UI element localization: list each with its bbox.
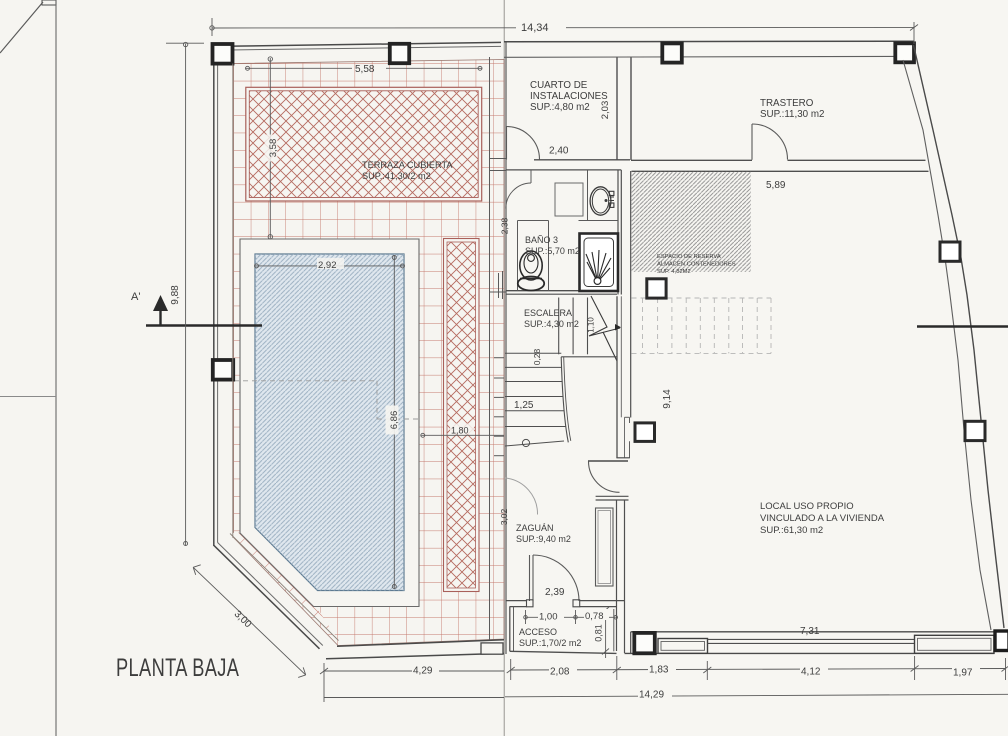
- svg-text:3,02: 3,02: [499, 508, 509, 525]
- svg-text:TRASTERO: TRASTERO: [760, 98, 814, 109]
- svg-text:7,31: 7,31: [800, 626, 820, 637]
- svg-text:SUP.:5,70 m2: SUP.:5,70 m2: [525, 246, 580, 256]
- svg-text:2,03: 2,03: [600, 101, 611, 120]
- svg-text:5,58: 5,58: [355, 64, 375, 75]
- svg-text:LOCAL USO PROPIO: LOCAL USO PROPIO: [760, 501, 854, 512]
- svg-text:ESCALERA: ESCALERA: [524, 308, 572, 318]
- svg-text:3,58: 3,58: [268, 139, 279, 158]
- svg-text:ACCESO: ACCESO: [519, 627, 557, 637]
- svg-text:2,39: 2,39: [545, 587, 565, 598]
- svg-text:2,08: 2,08: [550, 667, 570, 678]
- svg-text:1,00: 1,00: [539, 612, 558, 623]
- svg-text:0,78: 0,78: [585, 611, 604, 622]
- svg-text:BAÑO 3: BAÑO 3: [525, 235, 558, 245]
- svg-text:SUP.:4,80 m2: SUP.:4,80 m2: [530, 102, 590, 113]
- svg-text:ALMACEN CONTENEDORES: ALMACEN CONTENEDORES: [657, 262, 736, 268]
- svg-text:2,40: 2,40: [549, 146, 569, 157]
- svg-text:5,89: 5,89: [766, 180, 786, 191]
- svg-text:INSTALACIONES: INSTALACIONES: [530, 91, 608, 102]
- svg-text:4,29: 4,29: [413, 666, 433, 677]
- svg-text:1,10: 1,10: [587, 317, 596, 333]
- svg-text:CUARTO DE: CUARTO DE: [530, 80, 588, 91]
- svg-text:SUP. 4,82M2: SUP. 4,82M2: [657, 269, 691, 275]
- svg-text:14,29: 14,29: [639, 690, 664, 701]
- svg-text:0,81: 0,81: [594, 624, 604, 642]
- svg-text:SUP.:9,40 m2: SUP.:9,40 m2: [516, 534, 571, 544]
- svg-text:SUP.:11,30 m2: SUP.:11,30 m2: [760, 109, 824, 120]
- svg-text:4,12: 4,12: [801, 667, 821, 678]
- svg-text:SUP.:61,30 m2: SUP.:61,30 m2: [760, 525, 823, 536]
- svg-text:ESPACIO DE RESERVA: ESPACIO DE RESERVA: [657, 254, 721, 260]
- svg-text:14,34: 14,34: [521, 22, 549, 34]
- svg-text:VINCULADO A LA VIVIENDA: VINCULADO A LA VIVIENDA: [760, 513, 885, 524]
- svg-text:0,28: 0,28: [532, 348, 542, 365]
- svg-text:1,83: 1,83: [649, 665, 669, 676]
- svg-text:2,38: 2,38: [500, 217, 510, 234]
- svg-text:9,14: 9,14: [662, 389, 673, 409]
- svg-text:1,25: 1,25: [514, 400, 534, 411]
- svg-text:1,97: 1,97: [953, 668, 973, 679]
- svg-text:SUP.:41,30/2 m2: SUP.:41,30/2 m2: [362, 171, 431, 181]
- svg-text:PLANTA BAJA: PLANTA BAJA: [116, 653, 239, 682]
- svg-text:SUP.:4,30 m2: SUP.:4,30 m2: [524, 319, 579, 329]
- svg-text:2,92: 2,92: [318, 260, 337, 271]
- svg-text:TERRAZA CUBIERTA: TERRAZA CUBIERTA: [362, 160, 453, 170]
- svg-text:SUP.:1,70/2 m2: SUP.:1,70/2 m2: [519, 638, 581, 648]
- svg-text:A': A': [131, 291, 140, 303]
- svg-text:9,88: 9,88: [170, 285, 181, 305]
- svg-text:1,80: 1,80: [451, 426, 469, 436]
- svg-text:ZAGUÁN: ZAGUÁN: [516, 523, 554, 533]
- svg-text:6,86: 6,86: [389, 411, 400, 430]
